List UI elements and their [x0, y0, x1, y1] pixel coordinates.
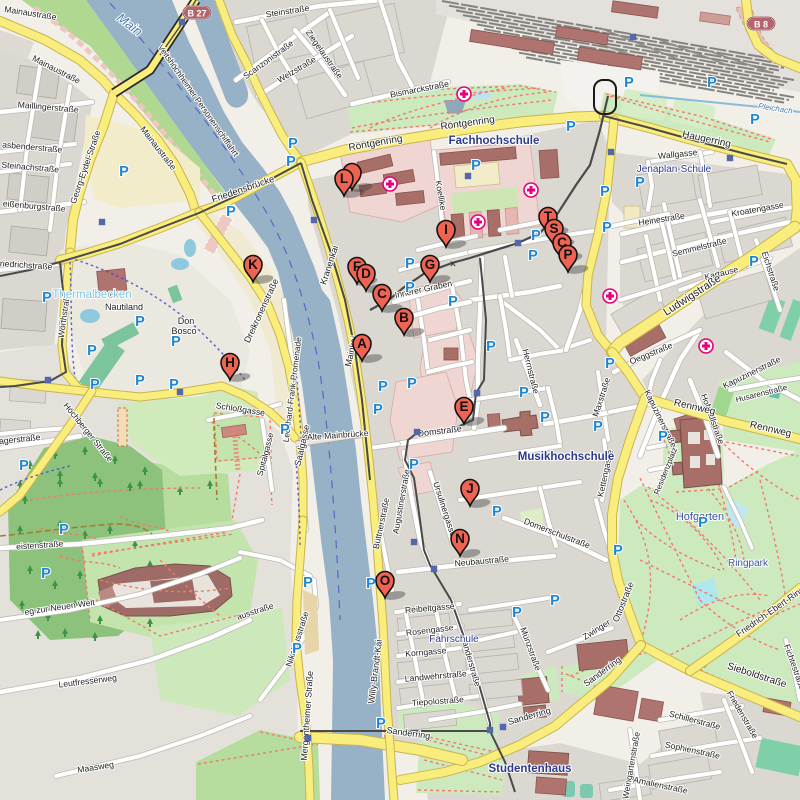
- svg-text:P: P: [448, 294, 458, 310]
- svg-text:P: P: [593, 419, 603, 435]
- svg-text:P: P: [135, 373, 145, 389]
- svg-text:P: P: [492, 504, 502, 520]
- svg-text:P: P: [471, 158, 481, 174]
- svg-text:L: L: [340, 171, 348, 186]
- svg-text:N: N: [455, 531, 465, 546]
- svg-text:P: P: [373, 402, 383, 418]
- svg-text:C: C: [377, 286, 387, 301]
- svg-text:P: P: [707, 75, 717, 91]
- svg-text:P: P: [286, 154, 296, 170]
- svg-text:Studentenhaus: Studentenhaus: [488, 763, 571, 775]
- svg-text:P: P: [19, 458, 29, 474]
- svg-text:P: P: [376, 716, 386, 732]
- svg-text:P: P: [405, 256, 415, 272]
- svg-text:P: P: [366, 576, 376, 592]
- svg-text:P: P: [624, 75, 634, 91]
- svg-text:P: P: [407, 376, 417, 392]
- svg-text:Fahrschule: Fahrschule: [429, 634, 479, 645]
- svg-text:P: P: [531, 228, 541, 244]
- svg-text:K: K: [248, 257, 258, 272]
- svg-text:P: P: [600, 184, 610, 200]
- svg-text:P: P: [405, 280, 415, 296]
- svg-text:Nautiland: Nautiland: [105, 302, 143, 312]
- svg-text:B 27: B 27: [187, 9, 206, 19]
- svg-text:I: I: [444, 222, 448, 237]
- svg-text:P: P: [135, 314, 145, 330]
- svg-text:P: P: [658, 429, 668, 445]
- svg-text:P: P: [119, 164, 129, 180]
- svg-text:P: P: [288, 136, 298, 152]
- svg-text:P: P: [540, 410, 550, 426]
- svg-text:P: P: [378, 379, 388, 395]
- svg-text:P: P: [528, 248, 538, 264]
- svg-text:✕: ✕: [449, 259, 457, 269]
- svg-text:P: P: [42, 290, 52, 306]
- svg-text:P: P: [87, 343, 97, 359]
- svg-text:P: P: [171, 334, 181, 350]
- svg-text:G: G: [425, 257, 436, 272]
- svg-text:P: P: [550, 593, 560, 609]
- svg-text:Don: Don: [178, 316, 195, 326]
- svg-text:H: H: [225, 355, 235, 370]
- svg-text:P: P: [409, 457, 419, 473]
- svg-text:D: D: [361, 266, 371, 281]
- svg-text:Musikhochschule: Musikhochschule: [518, 451, 615, 463]
- svg-text:B: B: [399, 310, 409, 325]
- svg-text:Fachhochschule: Fachhochschule: [449, 135, 540, 147]
- svg-text:E: E: [459, 399, 468, 414]
- svg-text:Ringpark: Ringpark: [728, 558, 769, 569]
- svg-text:S: S: [549, 221, 558, 236]
- svg-text:P: P: [605, 356, 615, 372]
- svg-text:J: J: [466, 481, 474, 496]
- svg-text:P: P: [41, 566, 51, 582]
- svg-text:P: P: [563, 247, 572, 262]
- svg-text:A: A: [357, 336, 367, 351]
- svg-text:P: P: [486, 339, 496, 355]
- svg-text:P: P: [512, 605, 522, 621]
- svg-text:P: P: [613, 543, 623, 559]
- svg-text:P: P: [90, 377, 100, 393]
- svg-text:P: P: [226, 204, 236, 220]
- svg-text:B 8: B 8: [754, 20, 768, 30]
- svg-text:P: P: [566, 119, 576, 135]
- svg-text:P: P: [635, 175, 645, 191]
- svg-text:P: P: [519, 385, 529, 401]
- svg-text:P: P: [280, 422, 290, 438]
- svg-text:P: P: [303, 575, 313, 591]
- svg-text:O: O: [380, 573, 391, 588]
- svg-text:P: P: [59, 522, 69, 538]
- svg-text:Thermalbecken: Thermalbecken: [52, 289, 131, 301]
- svg-text:P: P: [750, 112, 760, 128]
- svg-text:P: P: [698, 515, 708, 531]
- svg-text:P: P: [749, 254, 759, 270]
- svg-text:P: P: [292, 641, 302, 657]
- svg-text:P: P: [602, 220, 612, 236]
- svg-text:Jenaplan-Schule: Jenaplan-Schule: [637, 164, 712, 175]
